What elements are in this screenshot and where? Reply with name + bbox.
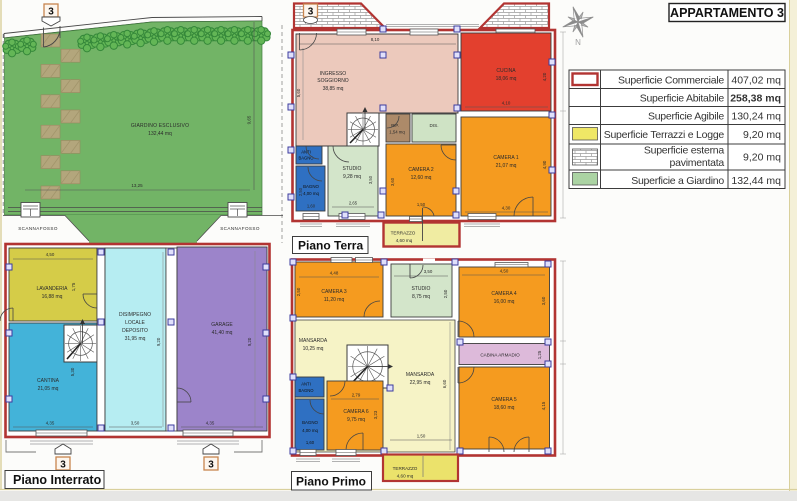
svg-text:TERRAZZO: TERRAZZO bbox=[393, 466, 418, 471]
svg-text:TERRAZZO: TERRAZZO bbox=[391, 231, 416, 236]
svg-text:Piano Primo: Piano Primo bbox=[296, 475, 366, 489]
svg-text:12,60 mq: 12,60 mq bbox=[411, 175, 432, 181]
svg-text:3,60: 3,60 bbox=[541, 296, 546, 305]
svg-text:4,60 mq: 4,60 mq bbox=[397, 474, 414, 479]
svg-text:2,50: 2,50 bbox=[296, 287, 301, 296]
svg-text:Superficie Abitabile: Superficie Abitabile bbox=[640, 93, 725, 105]
svg-text:GIARDINO ESCLUSIVO: GIARDINO ESCLUSIVO bbox=[131, 123, 189, 129]
svg-text:INGRESSO: INGRESSO bbox=[320, 71, 347, 77]
svg-text:3,60: 3,60 bbox=[390, 177, 395, 186]
svg-text:CAMERA 6: CAMERA 6 bbox=[343, 409, 369, 415]
svg-text:22,95 mq: 22,95 mq bbox=[410, 380, 431, 386]
svg-text:4,00 mq: 4,00 mq bbox=[302, 428, 318, 433]
svg-text:4,90: 4,90 bbox=[542, 160, 547, 169]
svg-text:Superficie Commerciale: Superficie Commerciale bbox=[618, 75, 724, 87]
svg-text:10,25 mq: 10,25 mq bbox=[303, 346, 324, 352]
svg-text:SCANNAFOSSO: SCANNAFOSSO bbox=[220, 226, 260, 231]
svg-text:4,00 mq: 4,00 mq bbox=[303, 191, 319, 196]
svg-text:3,50: 3,50 bbox=[368, 175, 373, 184]
svg-text:4,20: 4,20 bbox=[542, 72, 547, 81]
svg-text:132,44 mq: 132,44 mq bbox=[731, 175, 781, 187]
svg-text:4,30: 4,30 bbox=[502, 206, 511, 211]
svg-text:18,06 mq: 18,06 mq bbox=[496, 76, 517, 82]
svg-text:DIS.: DIS. bbox=[430, 123, 439, 128]
svg-text:9,75 mq: 9,75 mq bbox=[347, 417, 365, 423]
svg-text:9,20 mq: 9,20 mq bbox=[743, 152, 781, 164]
svg-text:8,10: 8,10 bbox=[371, 37, 380, 42]
svg-text:LAVANDERIA: LAVANDERIA bbox=[37, 286, 69, 292]
svg-text:6,60: 6,60 bbox=[442, 379, 447, 388]
svg-text:4,50: 4,50 bbox=[46, 252, 55, 257]
svg-text:SOGGIORNO: SOGGIORNO bbox=[317, 78, 349, 84]
svg-text:CUCINA: CUCINA bbox=[496, 68, 516, 74]
svg-text:4,10: 4,10 bbox=[502, 101, 511, 106]
svg-text:16,00 mq: 16,00 mq bbox=[494, 299, 515, 305]
svg-text:BAGNO: BAGNO bbox=[298, 156, 314, 161]
svg-text:9,20: 9,20 bbox=[156, 337, 161, 346]
svg-text:5,60: 5,60 bbox=[296, 88, 301, 97]
svg-text:4,35: 4,35 bbox=[46, 421, 55, 426]
svg-text:3,50: 3,50 bbox=[424, 269, 433, 274]
svg-text:BAGNO: BAGNO bbox=[298, 388, 314, 393]
svg-text:CAMERA 5: CAMERA 5 bbox=[491, 397, 517, 403]
svg-text:41,40 mq: 41,40 mq bbox=[212, 330, 233, 336]
svg-text:3: 3 bbox=[308, 7, 314, 18]
svg-text:4,35: 4,35 bbox=[206, 421, 215, 426]
svg-text:pavimentata: pavimentata bbox=[670, 157, 725, 169]
svg-text:STUDIO: STUDIO bbox=[343, 166, 362, 172]
svg-text:4,15: 4,15 bbox=[541, 401, 546, 410]
svg-text:1,75: 1,75 bbox=[71, 282, 76, 291]
svg-text:18,60 mq: 18,60 mq bbox=[494, 405, 515, 411]
svg-text:8,75 mq: 8,75 mq bbox=[412, 294, 430, 300]
svg-text:9,65: 9,65 bbox=[247, 115, 252, 124]
svg-text:MANSARDA: MANSARDA bbox=[406, 372, 435, 378]
svg-text:CAMERA 2: CAMERA 2 bbox=[408, 167, 434, 173]
svg-text:1,25: 1,25 bbox=[537, 350, 542, 359]
svg-text:CANTINA: CANTINA bbox=[37, 378, 60, 384]
svg-text:5,30: 5,30 bbox=[70, 367, 75, 376]
svg-text:MANSARDA: MANSARDA bbox=[299, 338, 328, 344]
svg-text:407,02 mq: 407,02 mq bbox=[731, 75, 781, 87]
svg-text:SCANNAFOSSO: SCANNAFOSSO bbox=[18, 226, 58, 231]
svg-text:2,50: 2,50 bbox=[443, 289, 448, 298]
svg-text:CAMERA 1: CAMERA 1 bbox=[493, 155, 519, 161]
svg-text:Piano Terra: Piano Terra bbox=[298, 239, 363, 253]
svg-text:38,85 mq: 38,85 mq bbox=[323, 86, 344, 92]
svg-text:N: N bbox=[575, 38, 581, 47]
svg-text:BAGNO: BAGNO bbox=[302, 420, 318, 425]
svg-text:DEPOSITO: DEPOSITO bbox=[122, 328, 148, 334]
svg-text:APPARTAMENTO 3: APPARTAMENTO 3 bbox=[670, 6, 784, 20]
svg-text:CAMERA 4: CAMERA 4 bbox=[491, 291, 517, 297]
svg-text:21,07 mq: 21,07 mq bbox=[496, 163, 517, 169]
svg-text:Superficie Agibile: Superficie Agibile bbox=[648, 111, 724, 123]
svg-text:4,48: 4,48 bbox=[330, 271, 339, 276]
svg-text:LOCALE: LOCALE bbox=[125, 320, 145, 326]
svg-text:9,20 mq: 9,20 mq bbox=[743, 129, 781, 141]
svg-text:1,60: 1,60 bbox=[306, 440, 315, 445]
svg-text:130,24 mq: 130,24 mq bbox=[731, 111, 781, 123]
svg-text:ANTI: ANTI bbox=[301, 382, 311, 387]
svg-text:GARAGE: GARAGE bbox=[211, 322, 233, 328]
svg-text:BAGNO: BAGNO bbox=[303, 184, 319, 189]
svg-text:ANTI: ANTI bbox=[301, 150, 311, 155]
svg-text:9,28 mq: 9,28 mq bbox=[343, 174, 361, 180]
svg-text:21,05 mq: 21,05 mq bbox=[38, 386, 59, 392]
svg-text:DISIMPEGNO: DISIMPEGNO bbox=[119, 312, 151, 318]
svg-text:3: 3 bbox=[208, 460, 214, 471]
svg-text:31,95 mq: 31,95 mq bbox=[125, 336, 146, 342]
svg-text:11,20 mq: 11,20 mq bbox=[324, 297, 345, 303]
svg-text:258,38 mq: 258,38 mq bbox=[730, 93, 781, 105]
svg-text:2,50: 2,50 bbox=[298, 187, 303, 196]
svg-text:3: 3 bbox=[48, 7, 54, 18]
svg-text:1,60: 1,60 bbox=[307, 204, 316, 209]
svg-text:3,23: 3,23 bbox=[373, 410, 378, 419]
svg-text:2,65: 2,65 bbox=[349, 201, 358, 206]
svg-text:1,54 mq: 1,54 mq bbox=[389, 130, 405, 135]
svg-text:9,20: 9,20 bbox=[247, 337, 252, 346]
svg-text:2,79: 2,79 bbox=[352, 393, 361, 398]
svg-text:Superficie Terrazzi e Logge: Superficie Terrazzi e Logge bbox=[604, 129, 725, 141]
svg-text:4,60 mq: 4,60 mq bbox=[396, 238, 413, 243]
svg-text:4,50: 4,50 bbox=[500, 269, 509, 274]
svg-text:Superficie esterna: Superficie esterna bbox=[644, 145, 725, 157]
svg-text:3: 3 bbox=[60, 460, 66, 471]
svg-text:13,25: 13,25 bbox=[131, 183, 143, 188]
svg-text:Superficie a Giardino: Superficie a Giardino bbox=[631, 175, 724, 187]
svg-text:STUDIO: STUDIO bbox=[412, 286, 431, 292]
svg-text:1,50: 1,50 bbox=[417, 434, 426, 439]
svg-text:3,50: 3,50 bbox=[131, 421, 140, 426]
svg-text:16,88 mq: 16,88 mq bbox=[42, 294, 63, 300]
svg-text:Piano Interrato: Piano Interrato bbox=[13, 473, 102, 487]
svg-text:1,50: 1,50 bbox=[417, 202, 426, 207]
svg-text:CAMERA 3: CAMERA 3 bbox=[321, 289, 347, 295]
svg-text:CABINA ARMADIO: CABINA ARMADIO bbox=[480, 353, 520, 358]
svg-text:132,44 mq: 132,44 mq bbox=[148, 131, 172, 137]
